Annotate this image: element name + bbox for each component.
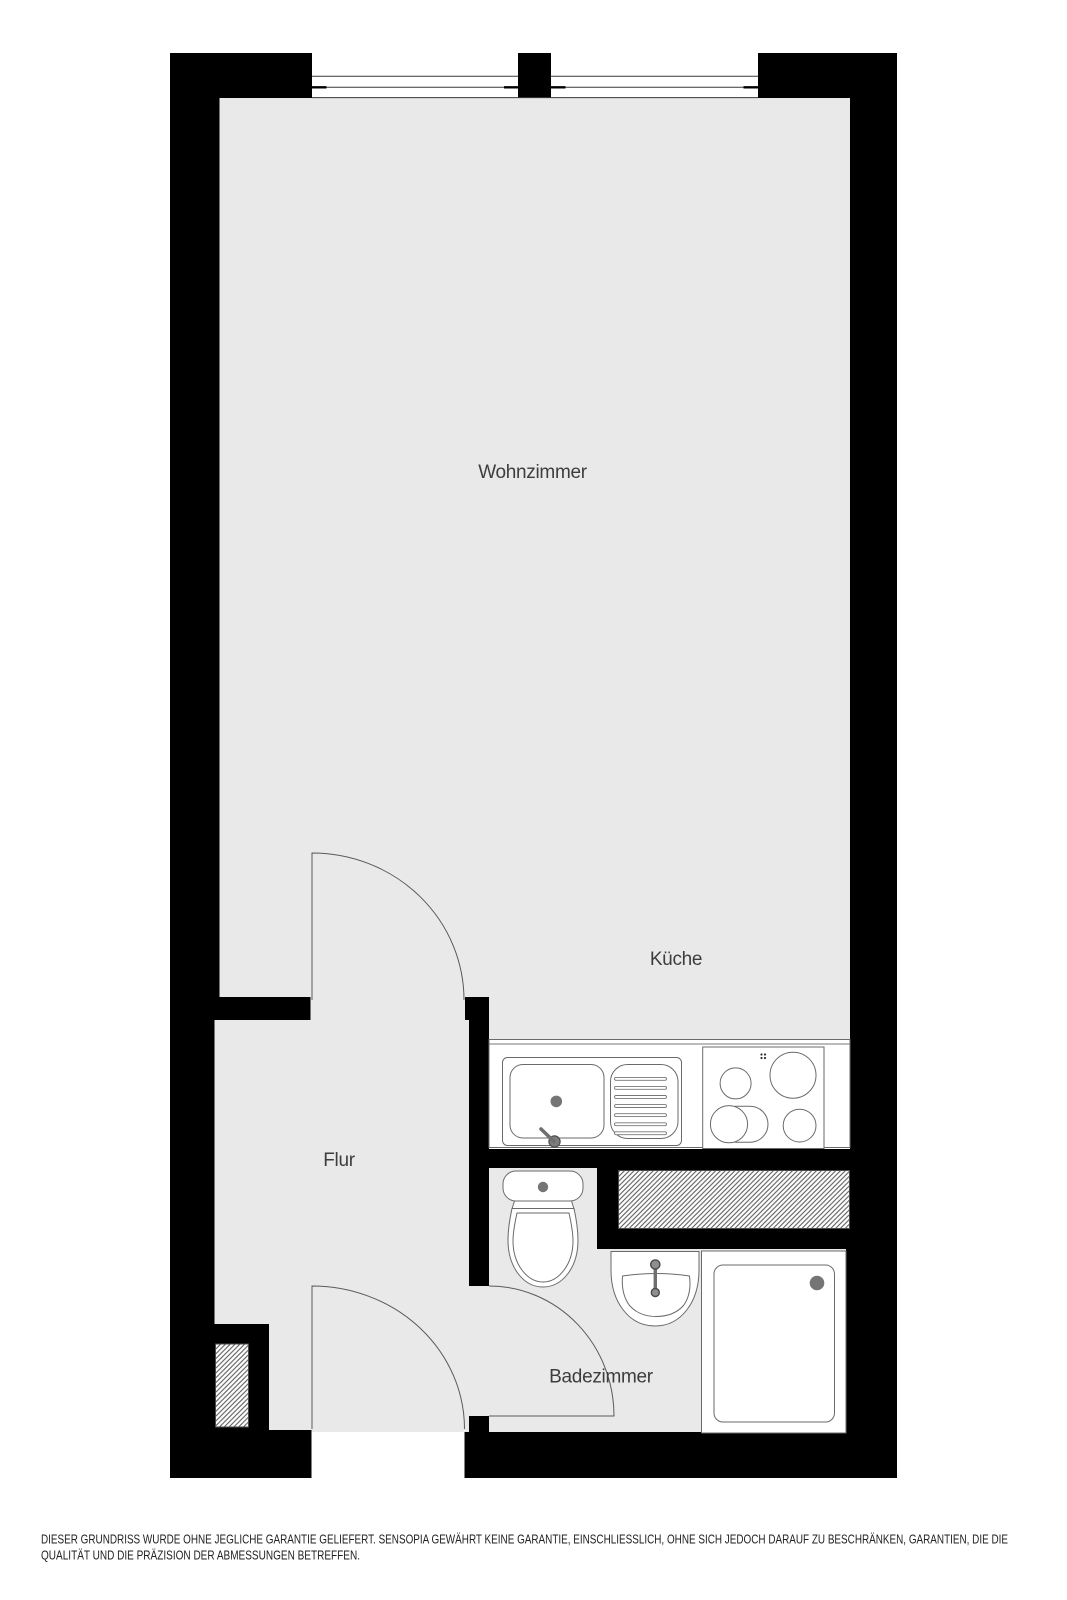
svg-text:Flur: Flur — [323, 1150, 355, 1171]
svg-text:DIESER GRUNDRISS WURDE OHNE JE: DIESER GRUNDRISS WURDE OHNE JEGLICHE GAR… — [41, 1532, 1008, 1547]
svg-text:Küche: Küche — [650, 949, 702, 970]
svg-text:QUALITÄT UND DIE PRÄZISION DER: QUALITÄT UND DIE PRÄZISION DER ABMESSUNG… — [41, 1548, 360, 1563]
svg-text:Wohnzimmer: Wohnzimmer — [478, 462, 588, 483]
svg-text:Badezimmer: Badezimmer — [549, 1367, 654, 1388]
